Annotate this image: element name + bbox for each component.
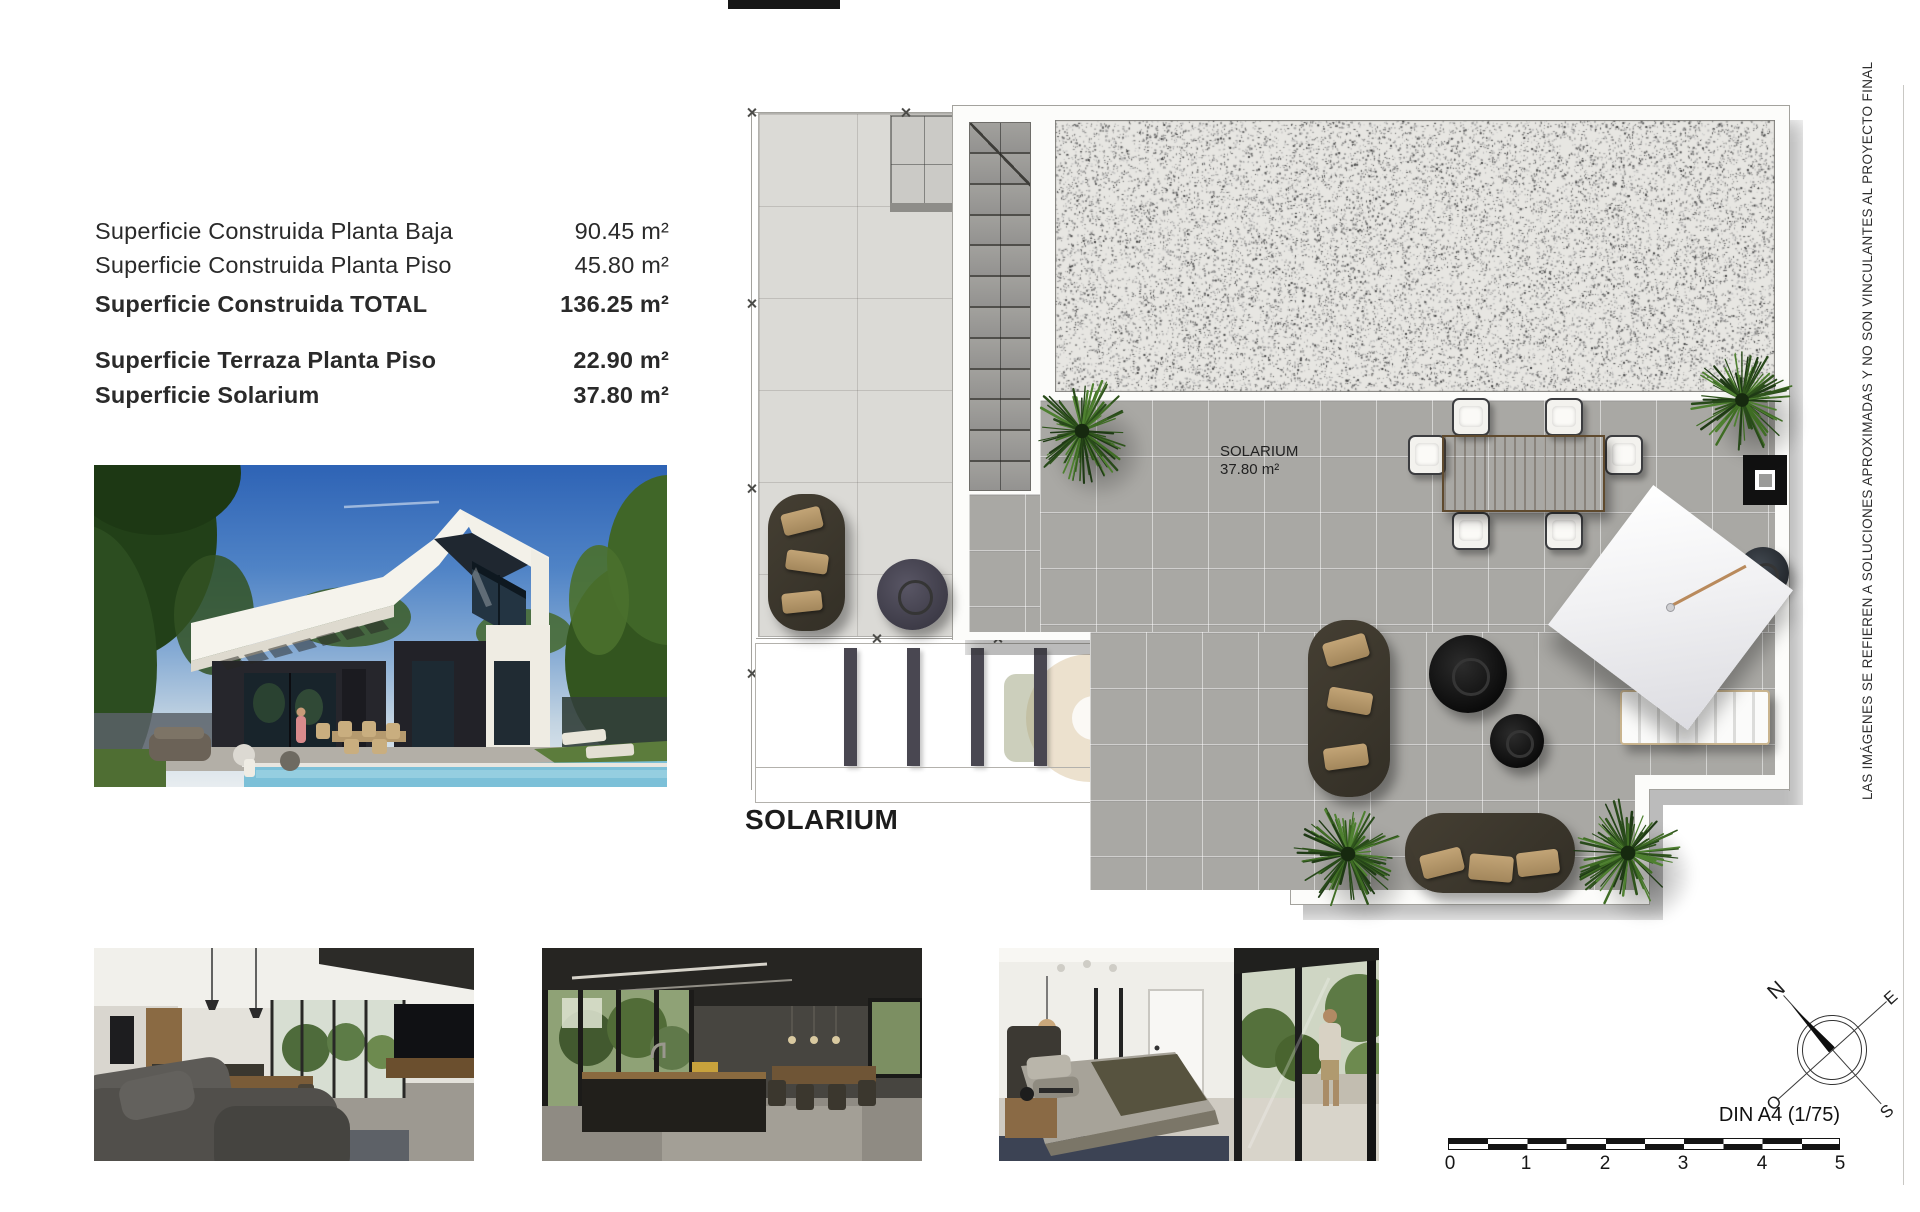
plant <box>1689 347 1795 453</box>
solarium-room-label: SOLARIUM 37.80 m² <box>1220 443 1298 479</box>
surface-row: Superficie Terraza Planta Piso22.90 m² <box>95 347 669 374</box>
dining-chair <box>1452 512 1490 550</box>
scale-tick-label: 4 <box>1757 1153 1768 1175</box>
surface-label: Superficie Construida Planta Baja <box>95 218 453 245</box>
dimension-line-left <box>751 112 752 790</box>
outdoor-sofa <box>1405 813 1575 893</box>
dining-chair <box>1408 435 1446 475</box>
roof-access-edge <box>890 203 955 212</box>
compass-rose-icon: N E S O <box>1712 930 1920 1170</box>
dining-chair <box>1452 398 1490 436</box>
living-room-illustration <box>94 948 474 1161</box>
compass-east-label: E <box>1880 987 1902 1009</box>
bedroom-illustration <box>999 948 1379 1161</box>
plan-caption: SOLARIUM <box>745 804 898 836</box>
kitchen-illustration <box>542 948 922 1161</box>
surface-row: Superficie Solarium37.80 m² <box>95 382 669 409</box>
solarium-floor <box>969 494 1040 632</box>
sun-lounger-below <box>768 494 845 631</box>
compass-south-label: S <box>1876 1101 1898 1123</box>
person-figure <box>296 708 306 744</box>
dining-chair <box>1545 398 1583 436</box>
glass-doors <box>1234 948 1379 1161</box>
scale-bar <box>1448 1138 1840 1150</box>
surface-label: Superficie Solarium <box>95 382 320 409</box>
surface-row-total: Superficie Construida TOTAL136.25 m² <box>95 291 669 318</box>
plant <box>1292 798 1404 910</box>
surface-value: 22.90 m² <box>573 347 669 374</box>
plant <box>1026 375 1138 487</box>
villa-photo <box>94 465 667 787</box>
side-table-below <box>877 559 948 630</box>
top-crop-strip <box>728 0 840 9</box>
villa-illustration <box>94 465 667 787</box>
disclaimer-text: LAS IMÁGENES SE REFIEREN A SOLUCIONES AP… <box>1860 100 1888 800</box>
sheet-frame-line <box>1903 85 1904 1185</box>
stairs <box>969 122 1031 491</box>
kitchen-island <box>582 1076 766 1132</box>
nightstand <box>1005 1098 1057 1138</box>
pouf-large <box>1429 635 1507 713</box>
surface-row: Superficie Construida Planta Piso45.80 m… <box>95 252 669 279</box>
interior-photo-living <box>94 948 474 1161</box>
dimension-line-top <box>751 112 953 113</box>
pouf-small <box>1490 714 1544 768</box>
brochure-page: { "surfaces": { "rows": [ {"label": "Sup… <box>0 0 1920 1212</box>
dining-table <box>1442 435 1605 512</box>
scale-tick-label: 1 <box>1521 1153 1532 1175</box>
surface-label: Superficie Terraza Planta Piso <box>95 347 436 374</box>
solarium-room-area: 37.80 m² <box>1220 461 1298 479</box>
surface-value: 90.45 m² <box>575 218 669 245</box>
surface-value: 136.25 m² <box>560 291 669 318</box>
surface-label: Superficie Construida Planta Piso <box>95 252 452 279</box>
gravel-roof <box>1055 120 1775 392</box>
surface-value: 37.80 m² <box>573 382 669 409</box>
floor-plan: SOLARIUM 37.80 m² <box>745 95 1815 935</box>
scale-tick-label: 2 <box>1600 1153 1611 1175</box>
tv <box>394 1004 474 1058</box>
scale-tick-label: 0 <box>1445 1153 1456 1175</box>
roof-access-block <box>890 115 955 212</box>
interior-photo-kitchen <box>542 948 922 1161</box>
plant <box>1571 796 1685 910</box>
surface-value: 45.80 m² <box>575 252 669 279</box>
dining-chair <box>1545 512 1583 550</box>
dining-chair <box>1605 435 1643 475</box>
scale-tick-label: 5 <box>1835 1153 1846 1175</box>
outdoor-sofa <box>1308 620 1390 797</box>
surface-label: Superficie Construida TOTAL <box>95 291 427 318</box>
surface-row: Superficie Construida Planta Baja90.45 m… <box>95 218 669 245</box>
interior-photo-bedroom <box>999 948 1379 1161</box>
scale-tick-label: 3 <box>1678 1153 1689 1175</box>
scale-format-label: DIN A4 (1/75) <box>1640 1104 1840 1127</box>
